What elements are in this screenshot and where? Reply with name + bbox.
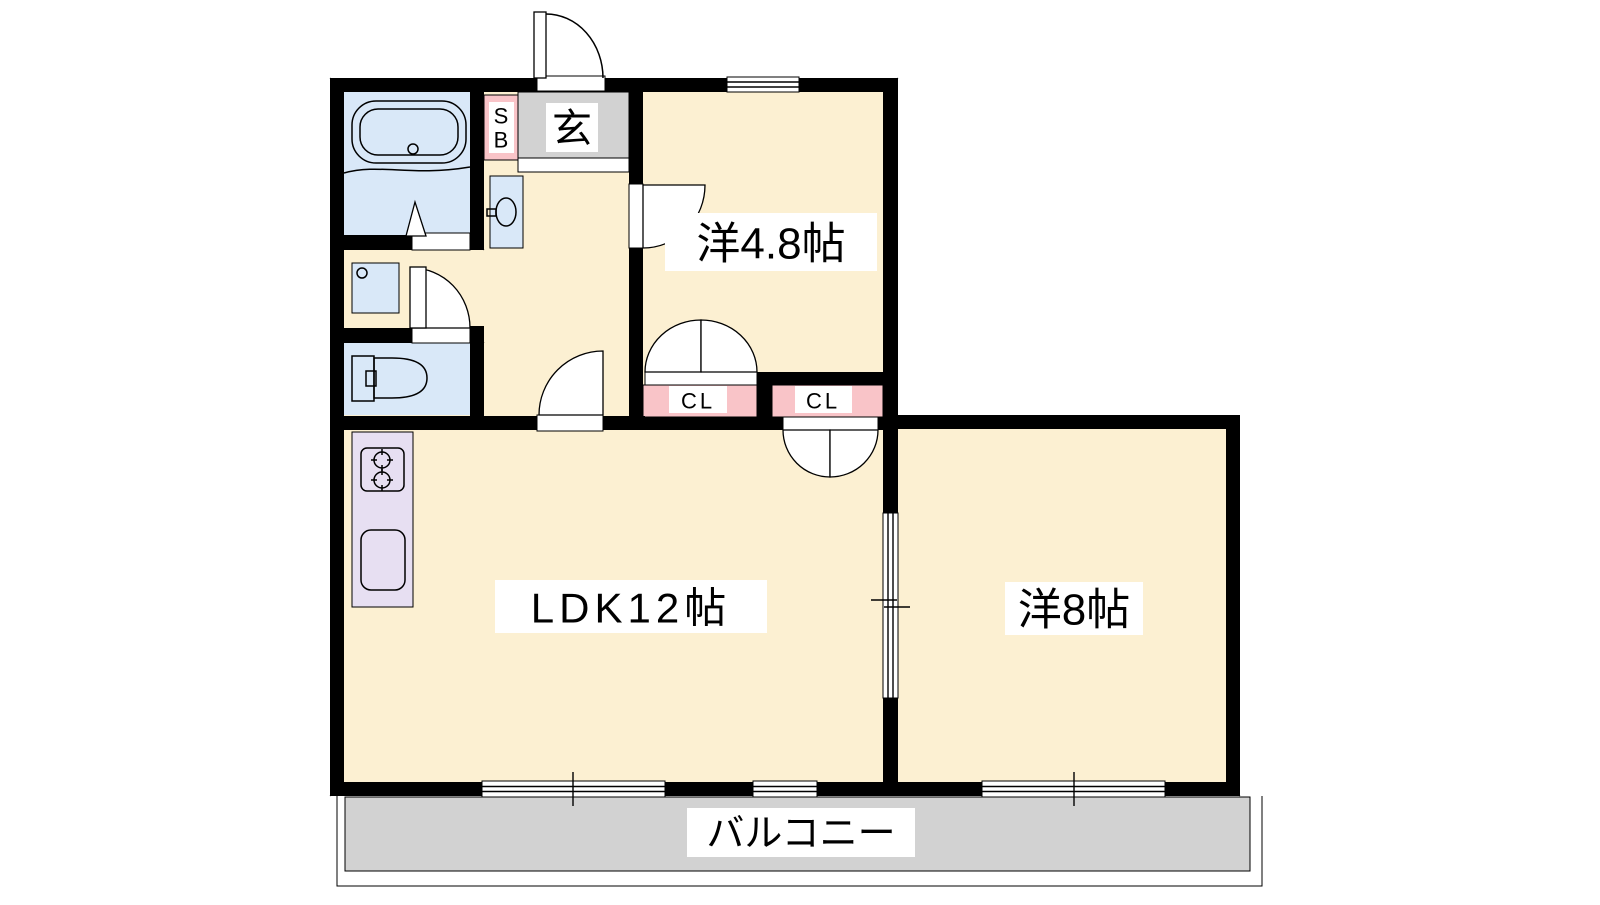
closet-right-label: CL: [806, 389, 840, 414]
washing-machine-pan: [352, 263, 399, 313]
floor-plan-svg: S B 玄 CL CL 洋4.8帖 LDK12帖 洋8帖 バルコニー: [0, 0, 1600, 900]
genkan-step: [518, 158, 629, 172]
washbasin-counter: [490, 176, 523, 248]
room8-label: 洋8帖: [1018, 586, 1130, 635]
shoe-box-label-s: S: [494, 104, 509, 129]
balcony-label: バルコニー: [706, 813, 895, 855]
closet-right-opening: [783, 417, 878, 430]
room48-label: 洋4.8帖: [696, 220, 845, 269]
window-ldk-small: [753, 781, 817, 797]
closet-left-opening: [645, 372, 757, 385]
closet-left-label: CL: [681, 389, 715, 414]
entrance-opening: [537, 76, 605, 91]
ldk-label: LDK12帖: [531, 585, 731, 632]
shoe-box-label-b: B: [494, 128, 509, 153]
window-top: [727, 77, 799, 92]
toilet-floor: [344, 343, 470, 415]
genkan-label: 玄: [552, 107, 592, 151]
floor-plan-page: S B 玄 CL CL 洋4.8帖 LDK12帖 洋8帖 バルコニー: [0, 0, 1600, 900]
room48-door-opening: [629, 184, 643, 248]
ldk-door-opening: [537, 415, 603, 431]
entrance-door: [534, 12, 603, 78]
